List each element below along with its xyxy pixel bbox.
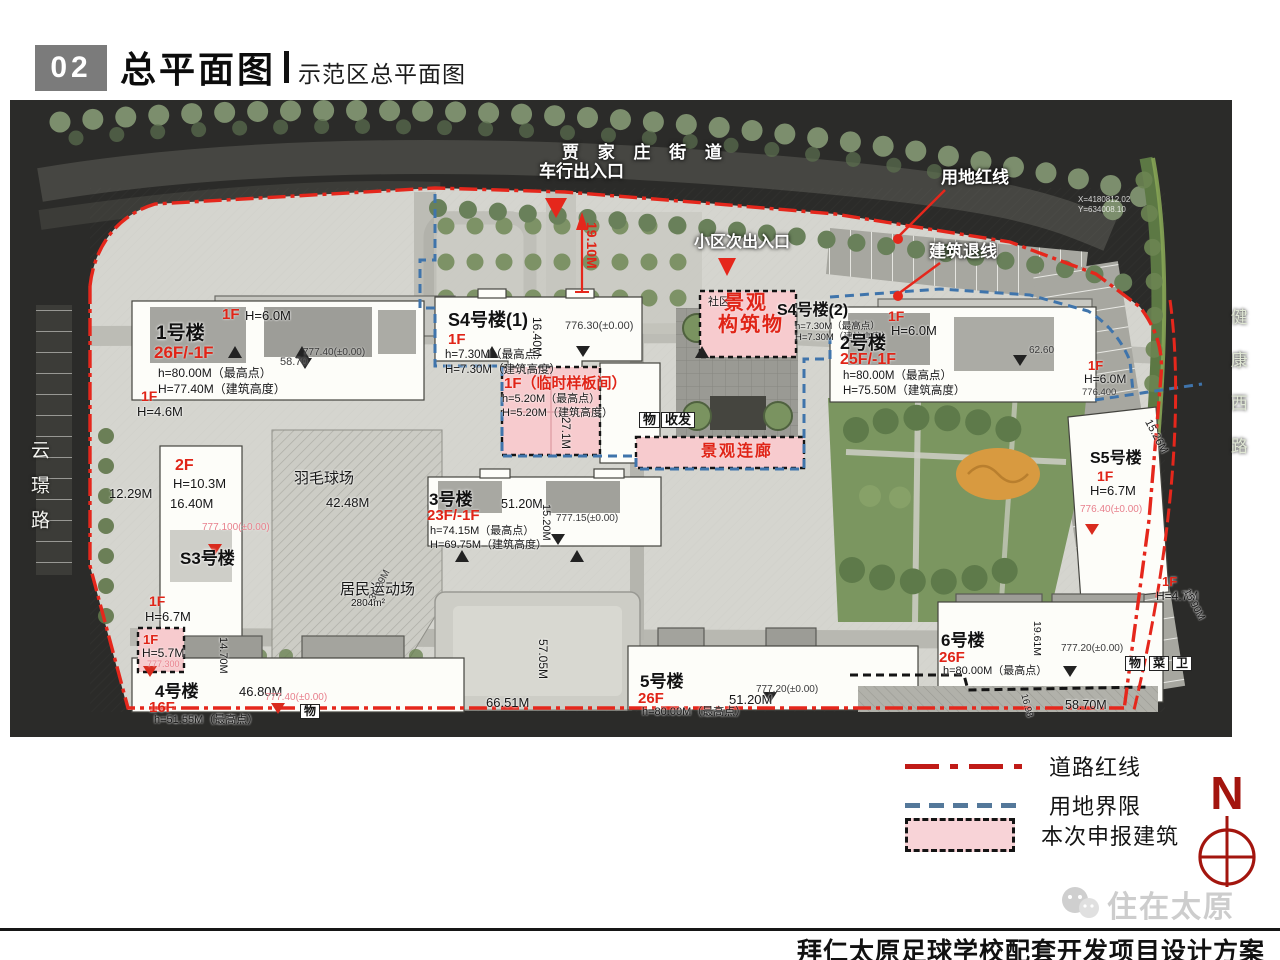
project-title: 拜仁太原足球学校配套开发项目设计方案: [797, 932, 1265, 960]
section-number: 02: [35, 45, 107, 91]
slide: 02 总平面图 示范区总平面图: [0, 0, 1280, 960]
page-subtitle: 示范区总平面图: [298, 55, 466, 89]
legend-item-declared-building: 本次申报建筑: [905, 818, 1179, 852]
header-divider: [284, 51, 289, 83]
legend-item-road-redline: 道路红线: [905, 750, 1141, 782]
land-boundary-sample: [905, 803, 1023, 808]
watermark-text: 住在太原: [1107, 882, 1235, 926]
north-letter: N: [1192, 770, 1262, 816]
site-plan-drawing: [10, 100, 1232, 737]
site-plan-map: [10, 100, 1232, 737]
legend-label: 用地界限: [1049, 789, 1141, 821]
north-arrow: N: [1192, 770, 1262, 893]
watermark: 住在太原: [1058, 882, 1235, 926]
page-title: 总平面图: [120, 41, 276, 93]
compass-icon: [1194, 816, 1260, 888]
legend-item-land-boundary: 用地界限: [905, 789, 1141, 821]
legend-label: 本次申报建筑: [1041, 819, 1179, 851]
road-redline-sample: [905, 764, 1023, 769]
wechat-icon: [1058, 884, 1102, 924]
footer-rule: [0, 928, 1280, 931]
declared-building-sample: [905, 818, 1015, 852]
legend-label: 道路红线: [1049, 750, 1141, 782]
